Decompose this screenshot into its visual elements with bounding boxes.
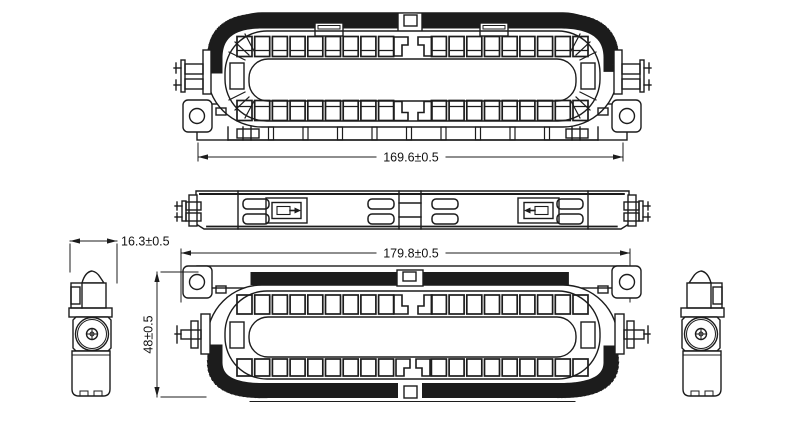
arrowhead — [613, 154, 623, 159]
arrowhead — [181, 250, 191, 255]
profile-view — [175, 191, 650, 229]
right-end-view — [681, 271, 724, 396]
technical-drawing-canvas: 169.6±0.5 — [0, 0, 796, 425]
top-center-notch — [398, 14, 422, 31]
hatch-window-left — [315, 23, 343, 36]
front-view-latch-right — [615, 314, 650, 354]
arrowhead — [107, 238, 117, 243]
arrowhead — [620, 250, 630, 255]
arrowhead — [154, 272, 159, 282]
arrowhead — [198, 154, 208, 159]
dim-overall-height-label: 48±0.5 — [142, 315, 156, 353]
top-view-ear-left — [183, 100, 212, 132]
bottom-center-tab — [398, 383, 422, 399]
profile-latch-left — [175, 195, 201, 226]
end-view-collar — [69, 308, 112, 317]
dim-overall-width-label: 179.8±0.5 — [383, 247, 439, 261]
profile-latch-right — [624, 195, 650, 226]
end-view-lower-block — [72, 351, 110, 396]
top-view-latch-right — [614, 50, 651, 94]
top-view-latch-left — [174, 50, 211, 94]
top-view-ear-right — [612, 100, 641, 132]
teeth-center-tab — [397, 270, 423, 286]
front-view-ear-right — [612, 266, 641, 298]
left-end-view — [69, 271, 112, 396]
end-view-hook — [82, 271, 104, 283]
dim-top-width-label: 169.6±0.5 — [383, 151, 439, 165]
arrowhead — [154, 387, 159, 397]
dim-top-width: 169.6±0.5 — [198, 143, 623, 165]
front-view-ear-left — [183, 266, 212, 298]
hatch-window-right — [480, 23, 508, 36]
front-view-latch-left — [175, 314, 210, 354]
front-view-body — [207, 285, 618, 397]
dim-end-view-width-label: 16.3±0.5 — [121, 235, 170, 249]
connector-drawing: 169.6±0.5 — [0, 0, 796, 425]
arrowhead — [70, 238, 80, 243]
front-view — [175, 266, 650, 402]
